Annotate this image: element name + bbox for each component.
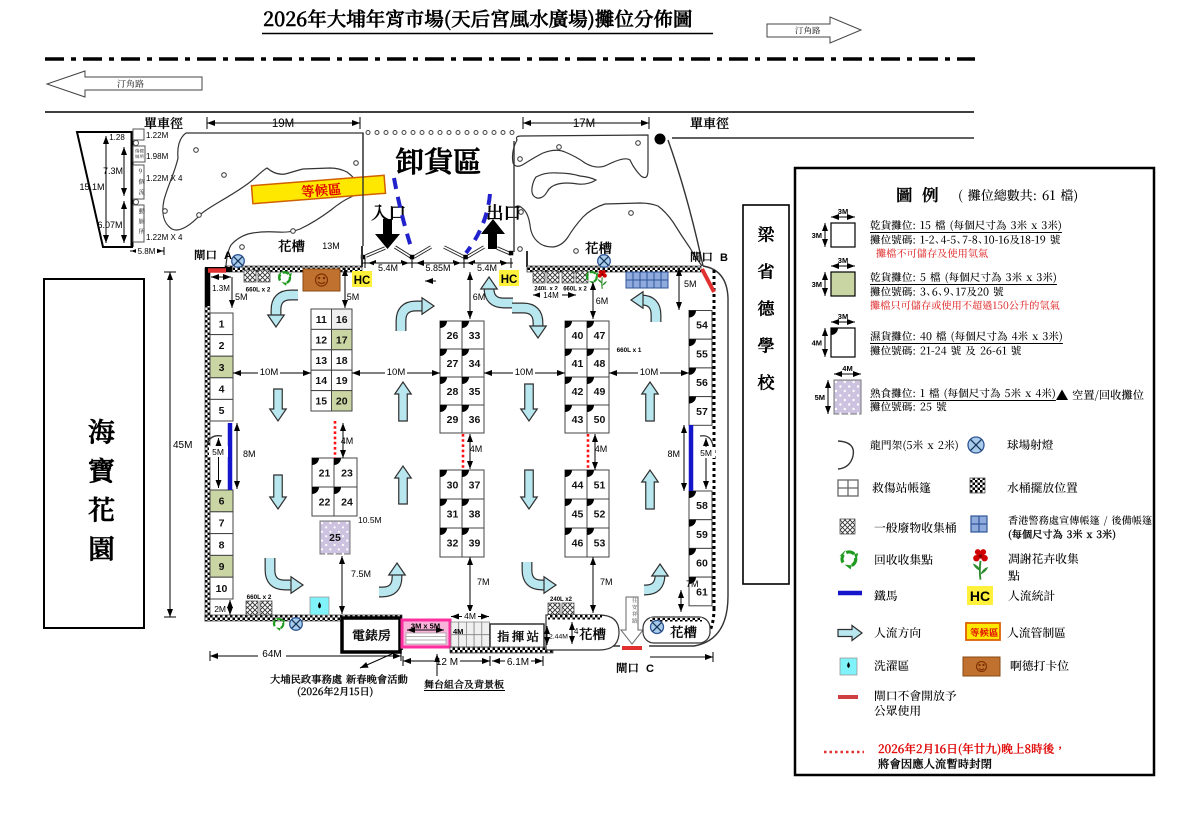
svg-text:8: 8 xyxy=(219,539,225,551)
svg-text:4M: 4M xyxy=(341,436,354,446)
svg-text:1: 1 xyxy=(219,319,225,331)
svg-text:7M: 7M xyxy=(600,577,613,587)
svg-text:14: 14 xyxy=(315,375,327,387)
svg-text:46: 46 xyxy=(572,537,584,549)
svg-text:17: 17 xyxy=(336,334,348,346)
svg-text:28: 28 xyxy=(447,386,459,398)
svg-text:64M: 64M xyxy=(262,649,281,660)
svg-text:660L x 2: 660L x 2 xyxy=(247,594,272,601)
svg-text:6.1M: 6.1M xyxy=(507,657,529,668)
svg-text:5M: 5M xyxy=(235,292,248,302)
svg-text:4M: 4M xyxy=(812,339,822,348)
svg-text:3M: 3M xyxy=(838,256,848,265)
svg-text:10M: 10M xyxy=(260,367,279,378)
svg-text:10M: 10M xyxy=(515,367,534,378)
svg-text:22: 22 xyxy=(319,496,331,508)
svg-text:3M x 5M: 3M x 5M xyxy=(411,622,440,631)
svg-text:49: 49 xyxy=(594,386,606,398)
svg-text:17M: 17M xyxy=(573,118,595,130)
svg-text:24: 24 xyxy=(341,496,353,508)
svg-text:10M: 10M xyxy=(387,367,406,378)
svg-text:12 M: 12 M xyxy=(436,657,458,668)
svg-text:1.28: 1.28 xyxy=(109,133,125,142)
svg-text:7: 7 xyxy=(219,518,225,530)
svg-text:56: 56 xyxy=(696,377,708,389)
svg-text:36: 36 xyxy=(469,414,481,426)
svg-text:51: 51 xyxy=(594,479,606,491)
svg-text:6M: 6M xyxy=(596,296,609,306)
svg-text:3M: 3M xyxy=(812,231,822,240)
svg-text:40: 40 xyxy=(572,330,584,342)
svg-text:3M: 3M xyxy=(838,312,848,321)
svg-text:2.44M: 2.44M xyxy=(549,634,568,641)
svg-text:54: 54 xyxy=(696,320,708,332)
svg-text:2M: 2M xyxy=(214,604,226,614)
svg-text:7.5M: 7.5M xyxy=(351,569,371,579)
svg-text:42: 42 xyxy=(572,386,584,398)
svg-text:5.4M: 5.4M xyxy=(477,263,497,273)
svg-text:53: 53 xyxy=(594,537,606,549)
svg-text:44: 44 xyxy=(572,479,584,491)
svg-text:16: 16 xyxy=(336,314,348,326)
svg-text:660L x 2: 660L x 2 xyxy=(563,287,587,293)
svg-text:18: 18 xyxy=(336,355,348,367)
svg-text:5M: 5M xyxy=(347,292,360,302)
svg-text:5M: 5M xyxy=(815,393,825,402)
svg-text:HC: HC xyxy=(501,274,518,286)
svg-text:32: 32 xyxy=(447,537,459,549)
svg-text:43: 43 xyxy=(572,414,584,426)
svg-text:5: 5 xyxy=(219,405,225,417)
svg-text:8M: 8M xyxy=(243,449,256,459)
svg-text:10M: 10M xyxy=(640,367,659,378)
svg-text:1.22M: 1.22M xyxy=(146,131,169,140)
svg-text:9: 9 xyxy=(219,561,225,573)
svg-text:13M: 13M xyxy=(322,241,340,251)
svg-text:660L x 1: 660L x 1 xyxy=(617,347,642,354)
svg-text:7.3M: 7.3M xyxy=(103,166,123,176)
svg-text:4: 4 xyxy=(574,627,579,636)
svg-text:41: 41 xyxy=(572,358,584,370)
svg-text:1.3M: 1.3M xyxy=(212,284,230,293)
svg-text:HC: HC xyxy=(970,588,990,604)
svg-text:34: 34 xyxy=(469,358,481,370)
svg-text:10.5M: 10.5M xyxy=(358,515,382,525)
svg-text:2: 2 xyxy=(219,340,225,352)
svg-text:7M: 7M xyxy=(477,577,490,587)
svg-text:1.98M: 1.98M xyxy=(146,152,169,161)
svg-text:4M: 4M xyxy=(595,444,608,454)
svg-text:6.07M: 6.07M xyxy=(97,220,122,230)
svg-text:4M: 4M xyxy=(453,627,463,636)
svg-text:47: 47 xyxy=(594,330,606,342)
svg-text:19M: 19M xyxy=(272,118,294,130)
svg-text:11: 11 xyxy=(316,314,327,326)
svg-text:15: 15 xyxy=(315,396,327,408)
svg-text:8M: 8M xyxy=(667,449,680,459)
svg-text:21: 21 xyxy=(319,467,331,479)
svg-text:5M: 5M xyxy=(700,448,712,458)
svg-text:35: 35 xyxy=(469,386,481,398)
svg-text:5M: 5M xyxy=(212,447,224,457)
svg-text:6: 6 xyxy=(219,496,225,508)
svg-text:48: 48 xyxy=(594,358,606,370)
svg-text:4M: 4M xyxy=(842,364,852,373)
svg-text:4M: 4M xyxy=(470,444,483,454)
svg-text:37: 37 xyxy=(469,479,481,491)
svg-text:45: 45 xyxy=(572,508,584,520)
svg-text:39: 39 xyxy=(469,537,481,549)
svg-text:55: 55 xyxy=(696,348,708,360)
svg-text:26: 26 xyxy=(447,330,459,342)
svg-text:5.8M: 5.8M xyxy=(138,247,156,256)
svg-text:6M: 6M xyxy=(473,292,486,302)
svg-text:50: 50 xyxy=(594,414,606,426)
svg-text:3M: 3M xyxy=(812,280,822,289)
svg-text:20: 20 xyxy=(336,396,348,408)
svg-text:60: 60 xyxy=(696,558,708,570)
svg-text:660L x 2: 660L x 2 xyxy=(246,287,271,294)
svg-text:30: 30 xyxy=(447,479,459,491)
svg-text:10: 10 xyxy=(216,583,228,595)
svg-text:59: 59 xyxy=(696,529,708,541)
svg-text:4M: 4M xyxy=(464,611,476,621)
svg-text:25: 25 xyxy=(329,532,341,544)
svg-text:3: 3 xyxy=(219,362,225,374)
svg-text:4: 4 xyxy=(219,383,225,395)
svg-text:5M: 5M xyxy=(684,279,697,289)
svg-text:57: 57 xyxy=(696,406,708,418)
svg-text:14M: 14M xyxy=(543,291,559,300)
svg-text:3M: 3M xyxy=(838,207,848,216)
svg-text:1.22M X 4: 1.22M X 4 xyxy=(146,233,183,242)
svg-text:5.4M: 5.4M xyxy=(378,263,398,273)
svg-text:27: 27 xyxy=(447,358,459,370)
svg-text:1.22M X 4: 1.22M X 4 xyxy=(146,174,183,183)
svg-text:45M: 45M xyxy=(173,440,192,451)
svg-text:5.85M: 5.85M xyxy=(425,263,450,273)
svg-text:C: C xyxy=(646,663,654,675)
svg-text:7M: 7M xyxy=(686,579,699,589)
svg-text:12: 12 xyxy=(315,334,327,346)
svg-text:B: B xyxy=(720,252,728,264)
svg-text:HC: HC xyxy=(354,275,371,287)
svg-text:31: 31 xyxy=(447,508,459,520)
svg-text:240L x2: 240L x2 xyxy=(550,597,573,603)
svg-text:13: 13 xyxy=(315,355,327,367)
svg-text:33: 33 xyxy=(469,330,481,342)
svg-text:38: 38 xyxy=(469,508,481,520)
svg-text:29: 29 xyxy=(447,414,459,426)
svg-text:58: 58 xyxy=(696,500,708,512)
svg-text:A: A xyxy=(224,250,232,262)
svg-text:23: 23 xyxy=(341,467,353,479)
svg-text:15.1M: 15.1M xyxy=(79,182,104,192)
svg-text:19: 19 xyxy=(336,375,348,387)
svg-text:52: 52 xyxy=(594,508,606,520)
